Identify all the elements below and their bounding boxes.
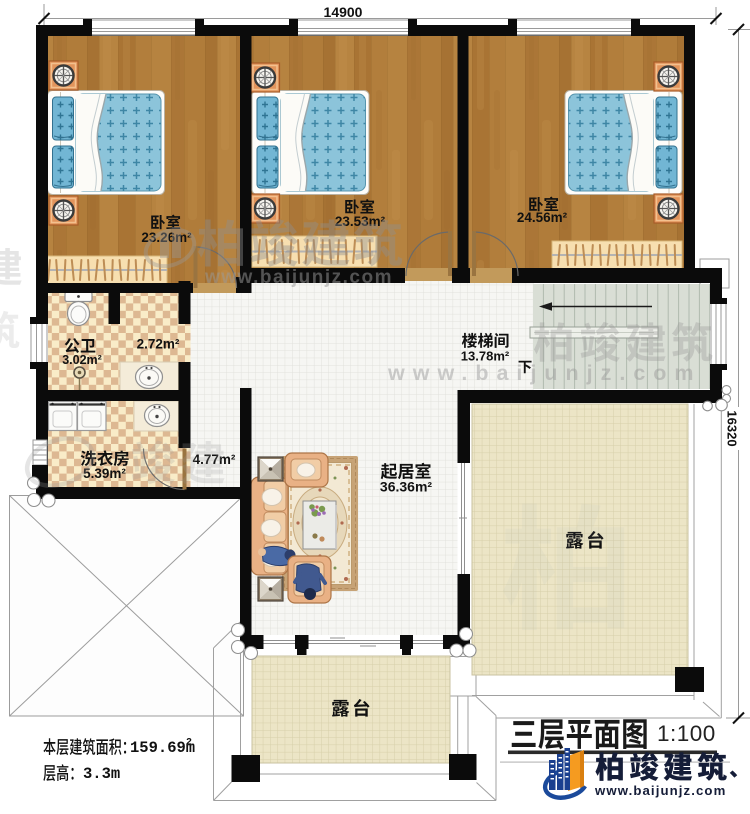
svg-text:www.baijunjz.com: www.baijunjz.com [387, 361, 702, 385]
svg-text:3.02m²: 3.02m² [62, 353, 102, 367]
svg-text:3.3m: 3.3m [83, 765, 120, 783]
svg-text:36.36m²: 36.36m² [380, 479, 432, 495]
svg-text:2: 2 [186, 738, 192, 749]
svg-text:16320: 16320 [725, 410, 740, 446]
svg-text:24.56m²: 24.56m² [517, 210, 568, 225]
svg-text:www.baijunjz.com: www.baijunjz.com [594, 783, 726, 798]
svg-text:1:100: 1:100 [657, 721, 716, 746]
svg-text:14900: 14900 [324, 4, 363, 20]
svg-text:www.baijunjz.com: www.baijunjz.com [204, 267, 393, 288]
svg-text:2.72m²: 2.72m² [137, 337, 180, 352]
